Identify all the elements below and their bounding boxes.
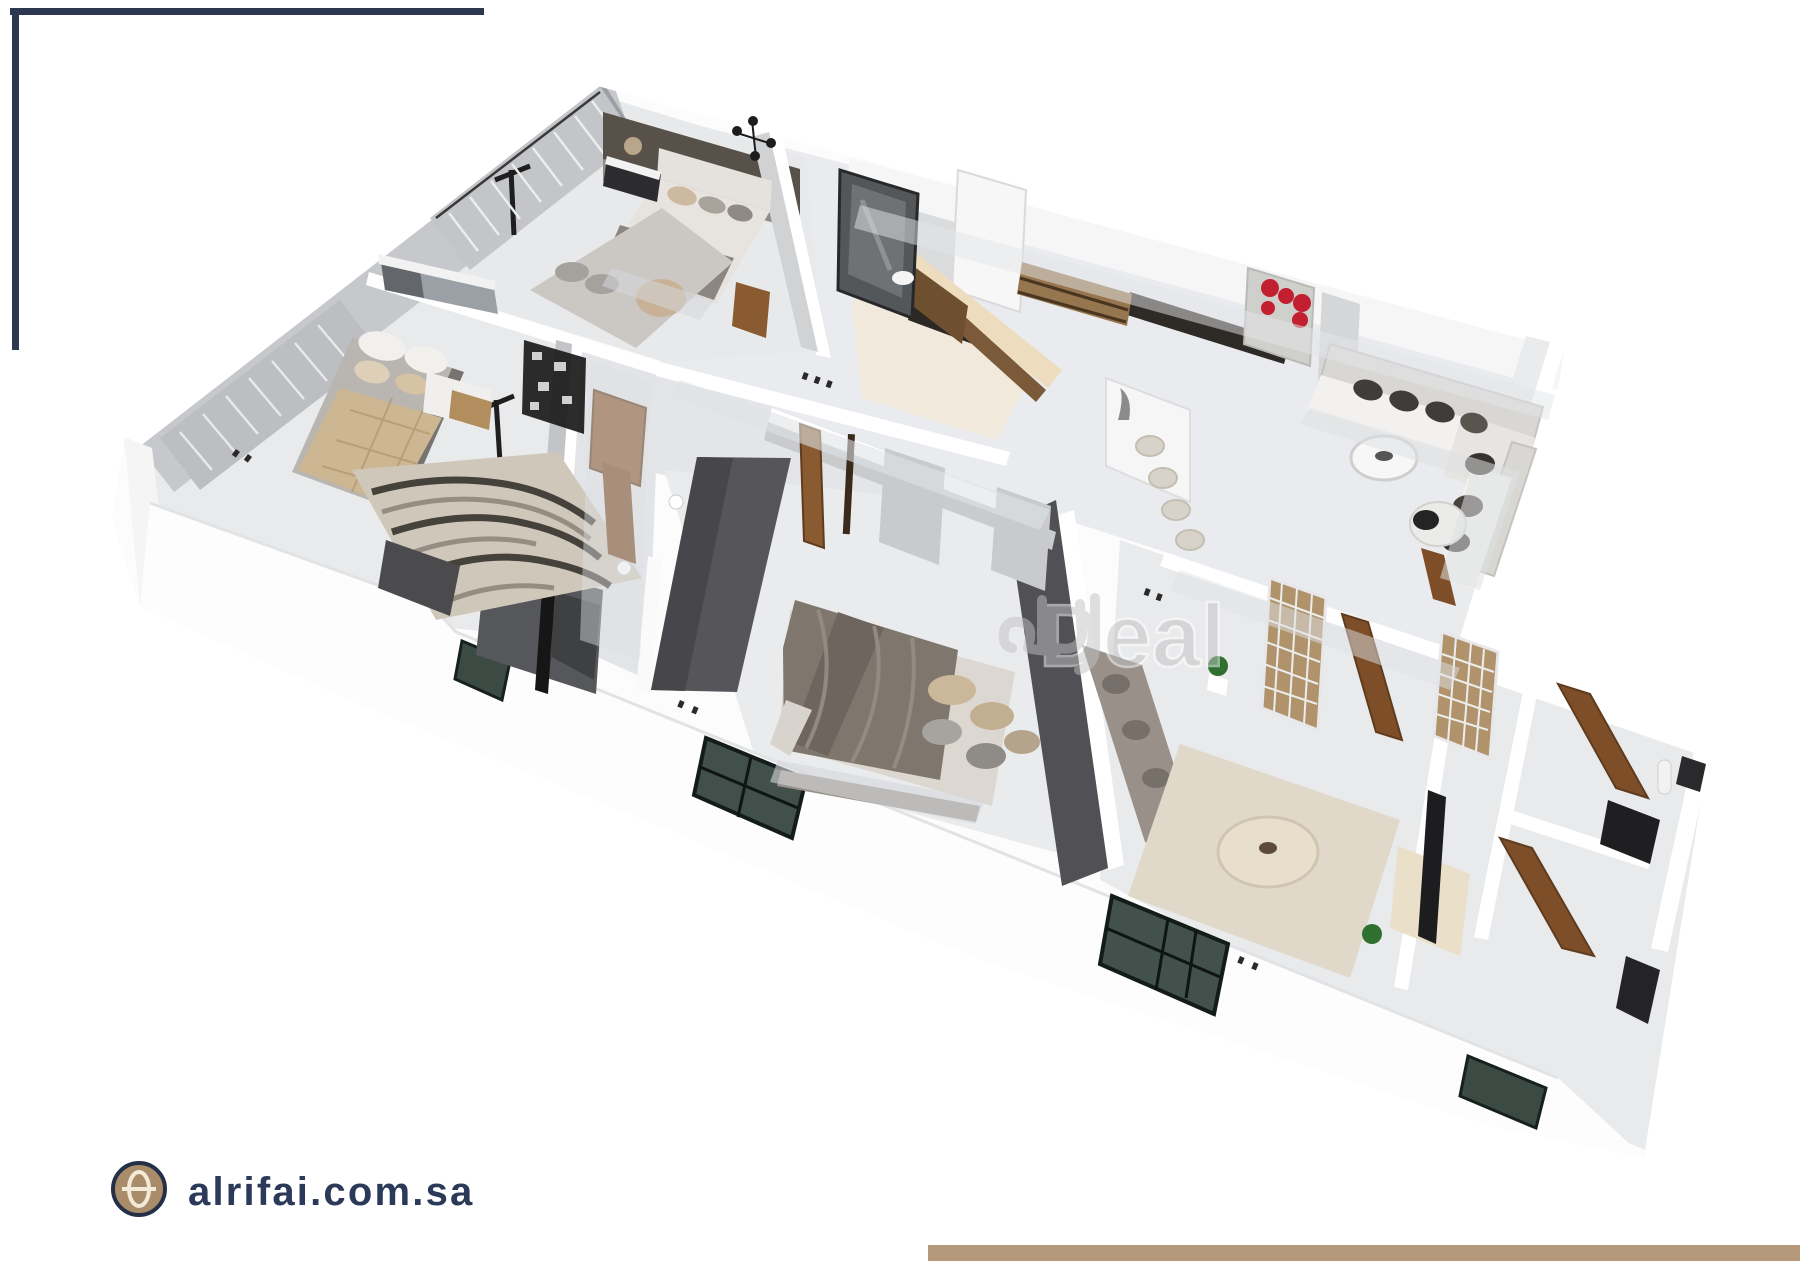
svg-text:Deal: Deal xyxy=(1039,586,1225,685)
svg-text:alrifai.com.sa: alrifai.com.sa xyxy=(188,1170,474,1214)
